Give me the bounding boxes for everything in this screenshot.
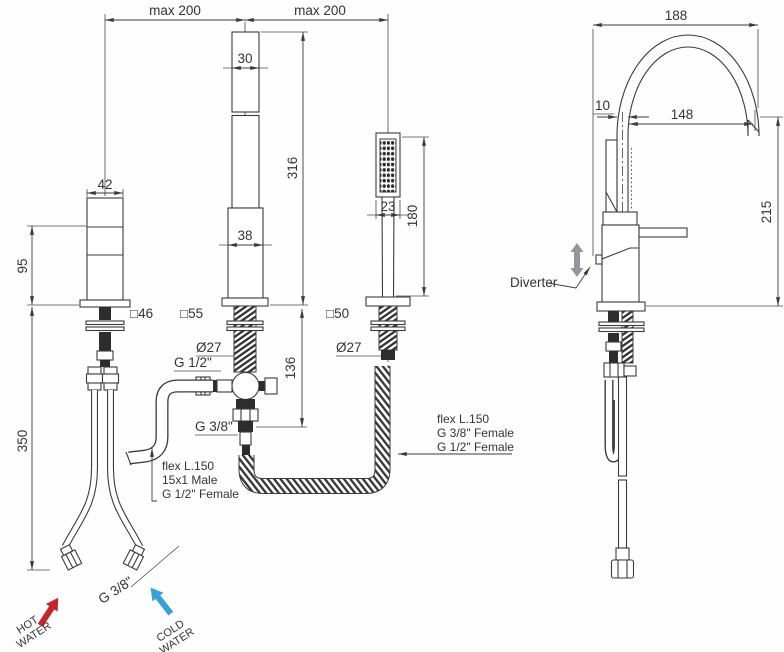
side-underdeck <box>599 311 644 578</box>
mixer-body-side <box>596 212 687 311</box>
front-view: max 200 max 200 42 95 □46 <box>8 3 514 652</box>
dim-spout-height: 316 <box>285 157 300 180</box>
spray-face <box>380 139 396 192</box>
dim-spout-outlet-thread: G 3/8" <box>195 419 233 434</box>
dim-max200-right: max 200 <box>294 3 346 18</box>
dim-spout-hole: □55 <box>180 306 203 321</box>
dim-handle-height: 95 <box>15 258 30 273</box>
right-hose-note: flex L.150 G 3/8" Female G 1/2" Female <box>398 412 514 454</box>
dim-spout-shank-dia: Ø27 <box>196 340 222 355</box>
dim-shower-shank-dia: Ø27 <box>336 340 362 355</box>
dim-hose-length: 350 <box>15 430 30 453</box>
dim-spout-reach-overall: 188 <box>665 8 688 23</box>
dim-shower-head-width: 23 <box>380 199 395 214</box>
dim-max200-left: max 200 <box>149 3 201 18</box>
dim-spout-top-width: 30 <box>237 51 252 66</box>
handle-lever <box>639 228 687 237</box>
left-hose-note: flex L.150 15x1 Male G 1/2" Female <box>152 448 239 501</box>
spout-unit: 30 38 316 □55 Ø27 G 1/2" <box>126 22 514 501</box>
cold-hose-fitting <box>123 544 146 570</box>
hand-shower-unit: 23 180 □50 Ø27 <box>326 131 429 368</box>
diverter-button <box>596 255 602 264</box>
dim-spout-tube-width: 10 <box>595 98 610 113</box>
dim-height-above-deck: 215 <box>759 201 774 224</box>
dim-spout-inlet-thread: G 1/2" <box>174 355 212 370</box>
dim-shower-length: 180 <box>405 205 420 228</box>
svg-text:flex L.150: flex L.150 <box>437 412 489 426</box>
dim-shower-hole: □50 <box>326 306 349 321</box>
dim-handle-width: 42 <box>97 177 112 192</box>
svg-text:flex L.150: flex L.150 <box>162 459 214 473</box>
dim-spout-reach-outlet: 148 <box>671 107 694 122</box>
svg-text:G 1/2" Female: G 1/2" Female <box>162 487 239 501</box>
svg-text:G 3/8" Female: G 3/8" Female <box>437 426 514 440</box>
gooseneck-spout <box>606 35 759 232</box>
diverter-motion-arrow-icon <box>571 243 584 277</box>
dim-handle-hole: □46 <box>130 306 153 321</box>
side-view: 188 Diverter <box>510 8 783 578</box>
technical-drawing-sheet: max 200 max 200 42 95 □46 <box>0 0 784 652</box>
diverter-label: Diverter <box>510 275 558 290</box>
cold-water-arrow-icon <box>145 583 176 618</box>
cold-water-label: COLD WATER <box>151 616 196 652</box>
dim-underdeck-depth: 136 <box>283 357 298 380</box>
dim-spout-body-width: 38 <box>237 228 252 243</box>
svg-text:G 1/2" Female: G 1/2" Female <box>437 440 514 454</box>
dim-supply-thread: G 3/8" <box>96 574 136 607</box>
supply-hoses <box>58 390 146 570</box>
hot-hose-fitting <box>58 544 81 570</box>
faucet-dimension-drawing: max 200 max 200 42 95 □46 <box>0 0 784 652</box>
svg-text:15x1 Male: 15x1 Male <box>162 473 218 487</box>
